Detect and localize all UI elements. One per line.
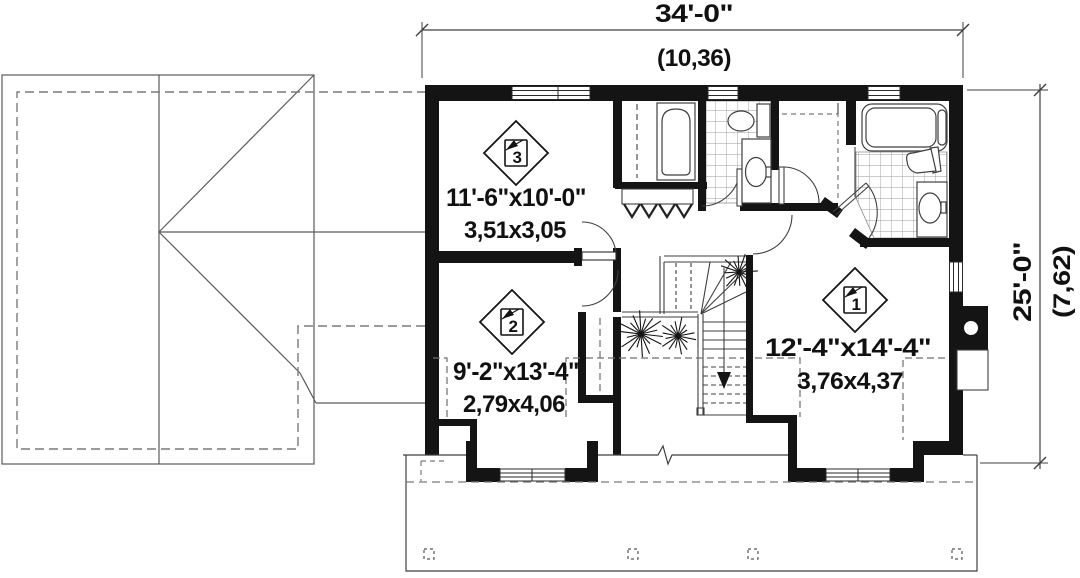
porch-post-icon (952, 549, 962, 559)
wall-ensuite-west (846, 101, 856, 145)
fireplace-icon (955, 306, 988, 390)
wall-south-east (920, 441, 963, 455)
dimension-top-metric: (10,36) (657, 45, 731, 72)
left-bay-front-e (565, 468, 598, 482)
floor-plan-page: 34'-0" (10,36) 25'-0" (7,62) (0, 0, 1080, 578)
bathtub-icon (657, 103, 695, 180)
dimension-side-imperial: 25'-0" (1009, 242, 1037, 322)
window-icon (500, 469, 565, 481)
sink-icon (917, 182, 947, 237)
bifold-door-icon (624, 204, 692, 217)
hip-line-lower (159, 232, 300, 373)
dimension-side-metric: (7,62) (1049, 246, 1076, 318)
wall-ensuite-south (860, 238, 963, 247)
wall-south-west-stub (425, 441, 439, 455)
window-icon (826, 469, 890, 481)
garage-roof-outline (2, 75, 426, 464)
closet-shelf (622, 189, 693, 204)
dimension-top-imperial: 34'-0" (655, 0, 733, 28)
room-size-metric: 3,51x3,05 (464, 217, 566, 244)
porch-post-icon (424, 549, 434, 559)
door-swing-icon (753, 215, 792, 254)
porch-post-icon (748, 549, 758, 559)
right-bay-front-e (890, 468, 924, 482)
plant-icons (620, 254, 758, 357)
wall-room3-room2 (433, 251, 578, 263)
right-bay-front-w (788, 468, 826, 482)
room-label-3: 3 11'-6"x10'-0" 3,51x3,05 (446, 121, 586, 244)
room-size-imperial: 12'-4"x14'-4" (765, 334, 931, 362)
room-badge-number: 1 (852, 295, 861, 314)
walk-in-closet (782, 103, 838, 202)
porch (403, 446, 977, 571)
plant-icon (662, 317, 696, 354)
dimension-right: 25'-0" (7,62) (967, 84, 1076, 469)
window-icon (868, 87, 900, 100)
room-size-imperial: 11'-6"x10'-0" (446, 184, 586, 212)
break-line-icon (648, 446, 682, 464)
wall-diagonal-stub-b (852, 232, 869, 245)
window-icon (950, 262, 963, 292)
floor-plan-drawing: 34'-0" (10,36) 25'-0" (7,62) (0, 0, 1080, 578)
door-swing-icon (779, 167, 819, 204)
closet-shelf-dashed (782, 114, 838, 202)
door-jamb-room3 (574, 248, 582, 266)
wall-landing-e (613, 402, 621, 455)
wall-room2-closet-s (578, 395, 621, 403)
window-icon (512, 87, 590, 100)
wall-closet-south (615, 182, 707, 189)
porch-post-icon (628, 549, 638, 559)
room-badge-number: 2 (509, 317, 518, 336)
wall-room2-south-stub (470, 419, 477, 443)
room-size-metric: 2,79x4,06 (463, 391, 565, 418)
door-swing-icon (582, 222, 616, 260)
porch-corner-dashed (421, 461, 447, 481)
room-label-2: 2 9'-2"x13'-4" 2,79x4,06 (453, 290, 579, 418)
bathtub-icon (862, 104, 947, 151)
roof-overhang-dashed (17, 92, 426, 449)
garage-eave-rect (2, 75, 314, 464)
wall-bedroom1-southwest (746, 415, 797, 423)
sink-icon (742, 139, 771, 203)
wall-room3-east (613, 101, 622, 188)
porch-posts (424, 549, 962, 559)
room-size-imperial: 9'-2"x13'-4" (453, 358, 579, 386)
window-icon (708, 87, 738, 100)
room-label-1: 1 12'-4"x14'-4" 3,76x4,37 (765, 268, 931, 395)
wall-west (425, 85, 439, 455)
wall-hall-strip-e-lower (613, 317, 621, 402)
door-swing-icon (582, 270, 618, 306)
room-badge-number: 3 (513, 148, 522, 167)
wall-bath-east (771, 101, 779, 170)
left-bay-front-w (466, 468, 500, 482)
dimension-top: 34'-0" (10,36) (416, 0, 969, 78)
wall-tub-tile-divider (698, 101, 706, 211)
wall-room2-closet-w (578, 312, 586, 398)
hip-line-upper (159, 75, 314, 232)
room-size-metric: 3,76x4,37 (797, 368, 903, 395)
